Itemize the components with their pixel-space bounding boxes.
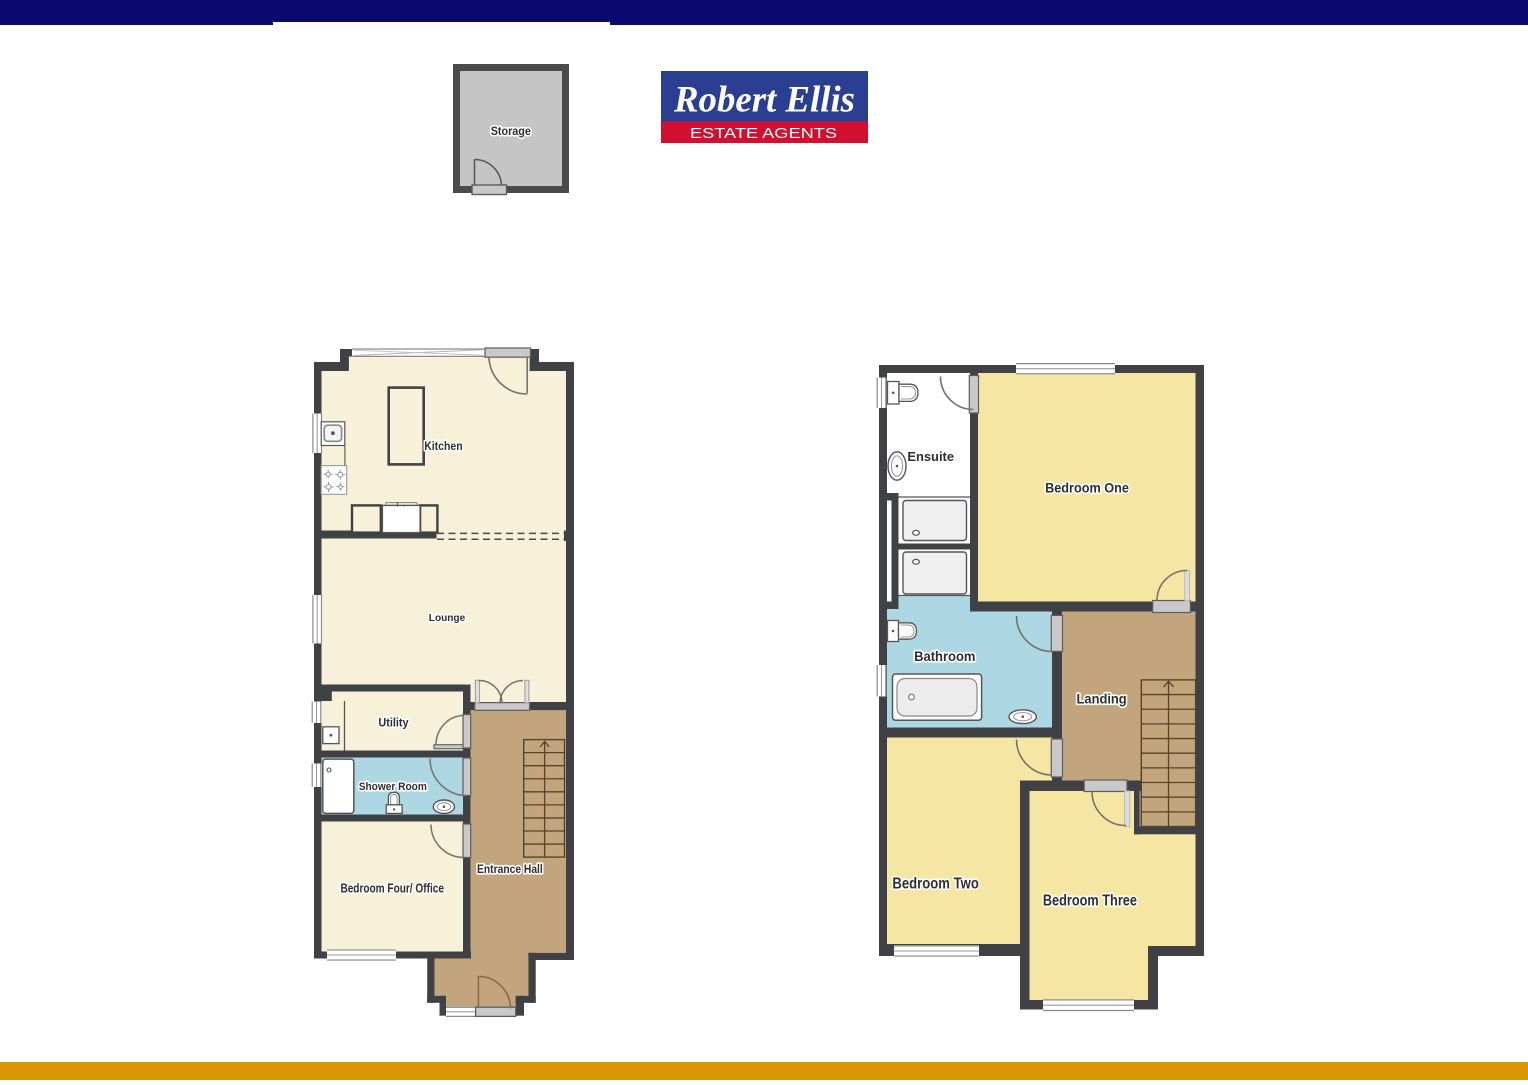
svg-text:Ensuite: Ensuite bbox=[907, 449, 954, 464]
svg-text:Lounge: Lounge bbox=[429, 613, 466, 624]
svg-text:Bedroom Four/ Office: Bedroom Four/ Office bbox=[340, 880, 444, 895]
svg-text:Storage: Storage bbox=[491, 124, 531, 138]
svg-text:Entrance Hall: Entrance Hall bbox=[477, 864, 543, 876]
svg-text:Kitchen: Kitchen bbox=[424, 441, 462, 453]
svg-text:Bedroom Three: Bedroom Three bbox=[1043, 893, 1137, 910]
svg-text:Bathroom: Bathroom bbox=[914, 649, 975, 664]
svg-text:Landing: Landing bbox=[1077, 692, 1127, 707]
svg-text:Bedroom Two: Bedroom Two bbox=[892, 876, 979, 893]
svg-text:Utility: Utility bbox=[378, 717, 409, 730]
svg-text:Bedroom One: Bedroom One bbox=[1045, 480, 1129, 496]
svg-text:Robert Ellis: Robert Ellis bbox=[673, 80, 855, 121]
svg-text:ESTATE AGENTS: ESTATE AGENTS bbox=[690, 126, 837, 142]
svg-text:Shower Room: Shower Room bbox=[359, 781, 427, 793]
